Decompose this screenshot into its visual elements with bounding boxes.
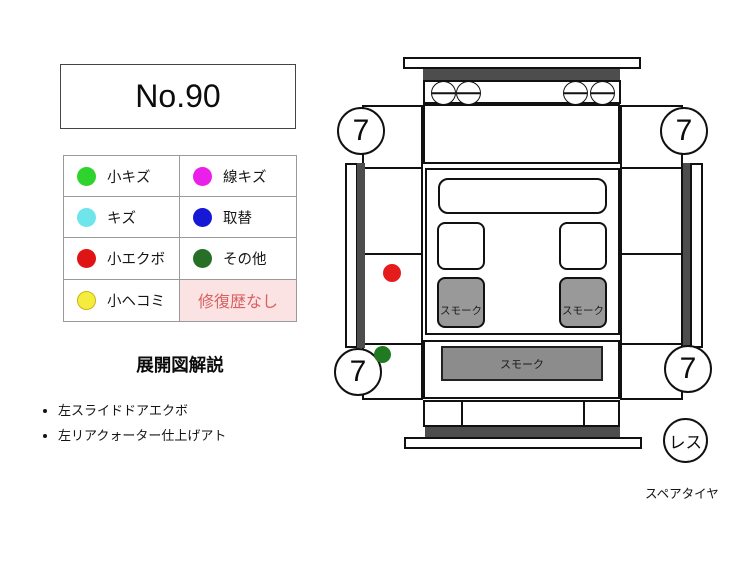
rear-panel: スモーク xyxy=(423,340,620,399)
hood-panel xyxy=(423,104,620,164)
wheel-rating-value: 7 xyxy=(680,352,697,386)
headlight-icon xyxy=(563,81,588,105)
front-left-window xyxy=(437,222,485,270)
front-bumper xyxy=(403,57,641,69)
headlight-icon xyxy=(431,81,456,105)
tailgate-divider xyxy=(461,402,463,425)
wheel-rating-front-left: 7 xyxy=(337,107,385,155)
spare-tire-less-badge: レス xyxy=(663,418,708,463)
tailgate-divider xyxy=(583,402,585,425)
smoked-glass-label: スモーク xyxy=(440,303,482,318)
wheel-rating-front-right: 7 xyxy=(660,107,708,155)
damage-mark-small-dimple xyxy=(383,264,401,282)
panel-divider xyxy=(364,343,421,345)
rear-trim-strip xyxy=(425,427,620,437)
wheel-rating-value: 7 xyxy=(676,114,693,148)
rear-bumper xyxy=(404,437,642,449)
front-trim-strip xyxy=(423,69,620,80)
left-rocker-trim xyxy=(357,163,365,348)
wheel-rating-rear-right: 7 xyxy=(664,345,712,393)
less-badge-label: レス xyxy=(669,429,702,453)
front-right-window xyxy=(559,222,607,270)
headlight-icon xyxy=(590,81,615,105)
left-slide-window-smoked: スモーク xyxy=(437,277,485,328)
panel-divider xyxy=(364,253,421,255)
wheel-rating-value: 7 xyxy=(353,114,370,148)
rear-window-smoked: スモーク xyxy=(441,346,603,381)
windshield xyxy=(438,178,607,214)
panel-divider xyxy=(622,167,681,169)
panel-divider xyxy=(622,343,681,345)
tailgate-row xyxy=(423,400,620,427)
vehicle-unfolded-diagram: スモーク スモーク スモーク 7 7 7 7 レス スペアタイヤ xyxy=(0,0,750,562)
roof-panel: スモーク スモーク xyxy=(425,168,620,335)
panel-divider xyxy=(364,167,421,169)
wheel-rating-value: 7 xyxy=(350,355,367,389)
panel-divider xyxy=(622,253,681,255)
right-rocker-strip xyxy=(690,163,703,348)
right-slide-window-smoked: スモーク xyxy=(559,277,607,328)
headlight-panel xyxy=(423,80,621,104)
smoked-glass-label: スモーク xyxy=(500,356,544,372)
smoked-glass-label: スモーク xyxy=(562,303,604,318)
damage-mark-other xyxy=(374,346,391,363)
headlight-icon xyxy=(456,81,481,105)
spare-tire-label: スペアタイヤ xyxy=(645,483,719,502)
